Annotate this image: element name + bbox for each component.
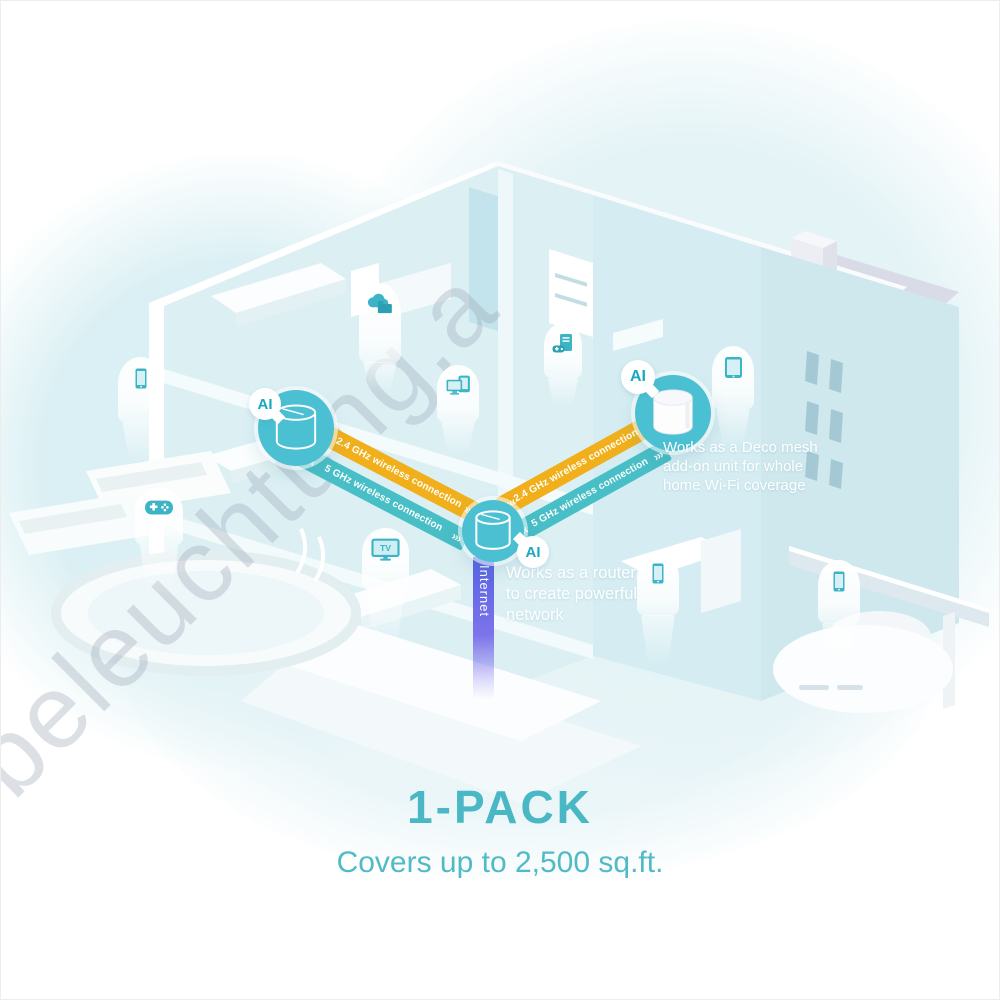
addon-note-line: Works as a Deco mesh (663, 438, 818, 457)
device-badge-tablet (712, 346, 754, 410)
multi-device-icon (445, 374, 472, 397)
ai-badge-label: AI (526, 544, 541, 561)
ai-badge: AI (517, 536, 549, 568)
tv-icon-label: TV (380, 543, 391, 553)
device-badge-smartphone-left (118, 357, 163, 423)
product-hero: beleuchtung.a ‹‹‹ 2.4 GHz wireless conne… (0, 0, 1000, 1000)
coverage-subtitle: Covers up to 2,500 sq.ft. (1, 846, 999, 880)
device-badge-gaming-pc (544, 323, 582, 379)
device-badge-smartphone-mid (637, 552, 679, 616)
device-badge-smartphone-right (818, 560, 860, 624)
device-badge-multi-device (437, 365, 479, 423)
tablet-icon (721, 355, 746, 381)
smartphone-icon (129, 366, 153, 392)
device-badge-game-controller (135, 488, 183, 546)
deco-unit-main-router (462, 500, 524, 562)
ai-badge: AI (621, 360, 655, 394)
router-note-line: to create powerful (506, 584, 637, 605)
deco-cylinder-icon (273, 403, 319, 453)
router-note: Works as a router to create powerful net… (506, 563, 637, 626)
addon-note: Works as a Deco mesh add-on unit for who… (663, 438, 818, 496)
device-badge-smart-tv: TV (362, 528, 409, 590)
cloud-storage-icon (366, 292, 394, 316)
internet-label: Internet (477, 565, 492, 617)
ai-badge-label: AI (258, 396, 273, 413)
gaming-pc-icon (551, 332, 575, 356)
ai-badge: AI (249, 388, 281, 420)
game-controller-icon (144, 497, 174, 517)
tv-icon: TV (370, 537, 401, 563)
smartphone-icon (646, 561, 670, 587)
device-badge-cloud-storage (359, 283, 401, 363)
deco-cylinder-icon (473, 509, 513, 553)
smartphone-icon (827, 569, 851, 595)
router-note-line: network (506, 605, 637, 626)
addon-note-line: add-on unit for whole (663, 457, 818, 476)
ai-badge-label: AI (630, 368, 646, 386)
pack-title: 1-PACK (1, 780, 999, 834)
addon-note-line: home Wi-Fi coverage (663, 476, 818, 495)
internet-uplink-band: Internet (473, 557, 494, 699)
